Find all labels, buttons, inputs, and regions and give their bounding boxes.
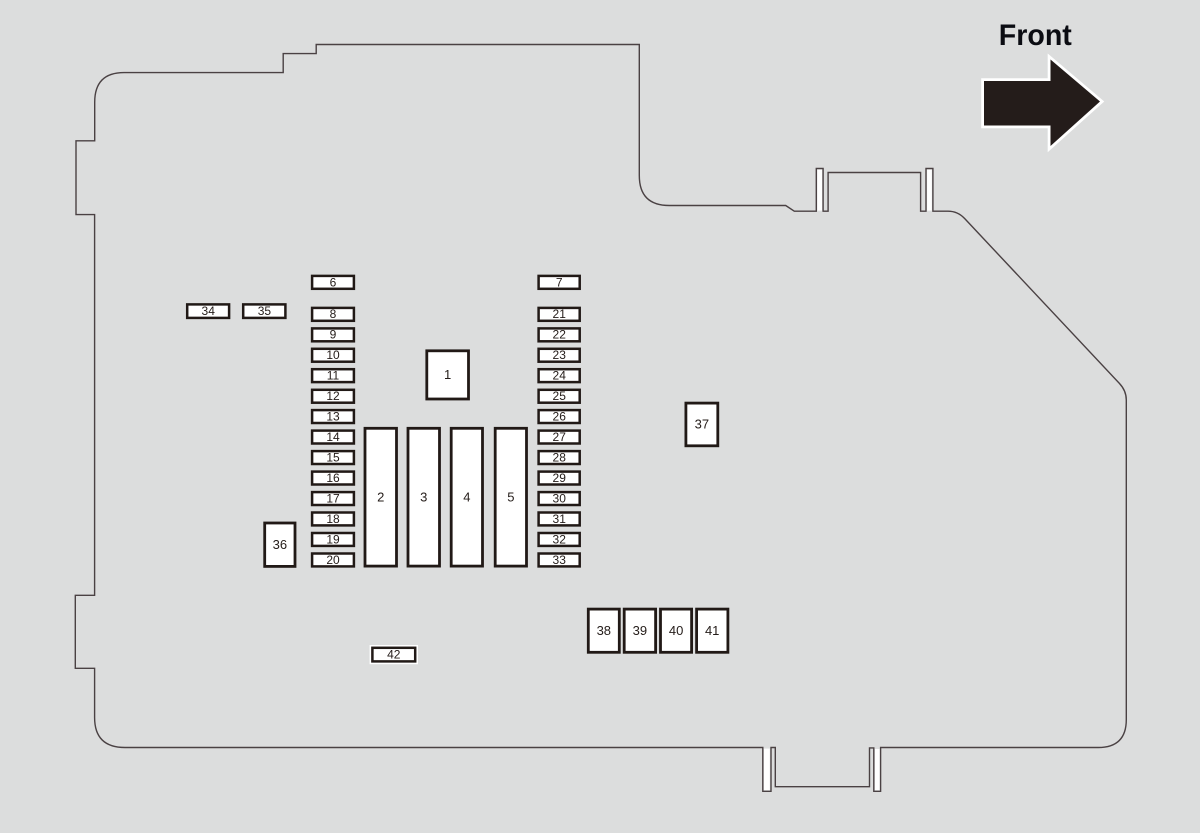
svg-text:32: 32	[553, 532, 567, 546]
svg-text:24: 24	[553, 369, 567, 383]
svg-text:13: 13	[326, 410, 340, 424]
svg-text:11: 11	[327, 369, 340, 383]
svg-text:2: 2	[377, 489, 384, 504]
svg-text:42: 42	[387, 647, 401, 661]
svg-text:8: 8	[330, 307, 337, 321]
svg-text:41: 41	[705, 623, 719, 638]
svg-text:39: 39	[633, 623, 647, 638]
svg-text:6: 6	[330, 275, 337, 289]
svg-text:34: 34	[202, 304, 216, 318]
svg-text:12: 12	[326, 389, 340, 403]
svg-text:Front: Front	[999, 19, 1072, 52]
svg-text:26: 26	[553, 410, 567, 424]
svg-text:37: 37	[695, 417, 709, 432]
svg-text:15: 15	[326, 451, 340, 465]
svg-text:28: 28	[553, 451, 567, 465]
svg-text:4: 4	[463, 489, 470, 504]
svg-text:7: 7	[556, 275, 563, 289]
svg-text:17: 17	[326, 491, 340, 505]
svg-text:35: 35	[258, 304, 272, 318]
svg-text:14: 14	[326, 430, 340, 444]
svg-text:16: 16	[326, 471, 340, 485]
svg-text:18: 18	[326, 512, 340, 526]
svg-text:33: 33	[553, 553, 567, 567]
svg-text:9: 9	[330, 328, 337, 342]
svg-text:23: 23	[553, 348, 567, 362]
svg-text:27: 27	[553, 430, 567, 444]
svg-text:10: 10	[326, 348, 340, 362]
svg-text:30: 30	[553, 491, 567, 505]
svg-text:31: 31	[553, 512, 567, 526]
svg-text:29: 29	[553, 471, 567, 485]
svg-text:3: 3	[420, 489, 427, 504]
svg-text:1: 1	[444, 367, 451, 382]
svg-text:5: 5	[507, 489, 514, 504]
svg-text:36: 36	[273, 537, 287, 552]
svg-text:22: 22	[553, 328, 567, 342]
svg-text:19: 19	[326, 532, 340, 546]
svg-text:21: 21	[553, 307, 567, 321]
svg-text:25: 25	[553, 389, 567, 403]
svg-text:38: 38	[597, 623, 611, 638]
svg-text:40: 40	[669, 623, 683, 638]
svg-text:20: 20	[326, 553, 340, 567]
